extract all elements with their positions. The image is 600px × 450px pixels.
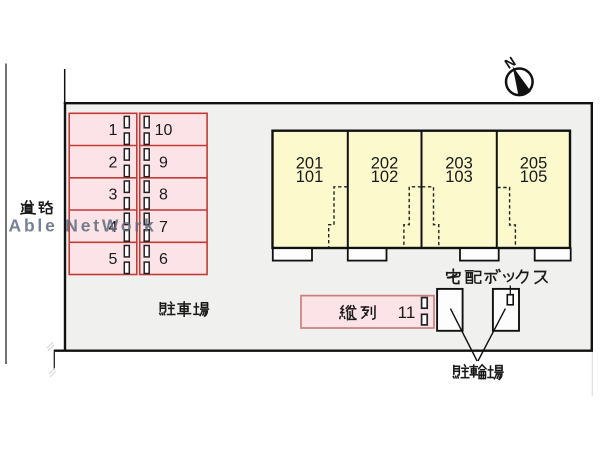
svg-text:103: 103 <box>445 168 473 186</box>
svg-text:10: 10 <box>155 122 173 139</box>
svg-text:7: 7 <box>159 219 168 236</box>
svg-text:105: 105 <box>520 168 548 186</box>
svg-text:101: 101 <box>296 168 324 186</box>
svg-text:3: 3 <box>109 187 118 204</box>
svg-text:11: 11 <box>398 303 416 322</box>
svg-text:102: 102 <box>371 168 399 186</box>
svg-text:9: 9 <box>159 154 168 171</box>
svg-text:2: 2 <box>109 154 118 171</box>
svg-text:Able NetWork: Able NetWork <box>9 216 157 236</box>
svg-text:6: 6 <box>159 251 168 268</box>
svg-text:1: 1 <box>109 122 118 139</box>
svg-text:8: 8 <box>159 187 168 204</box>
svg-text:5: 5 <box>109 251 118 268</box>
